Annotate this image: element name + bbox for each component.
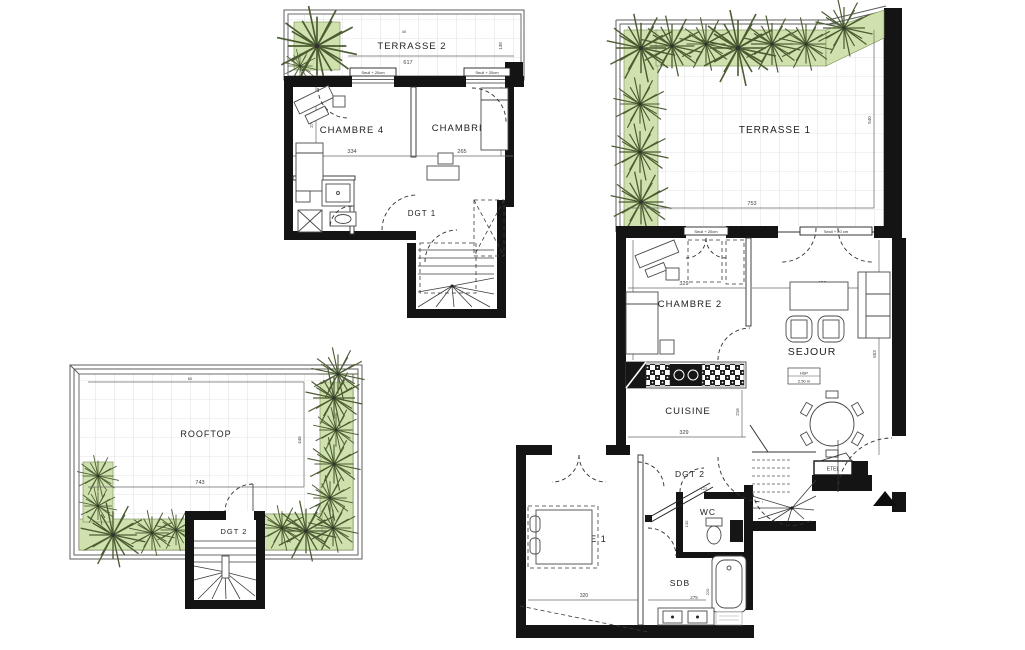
dining-table (800, 391, 863, 457)
entry-staircase (752, 460, 816, 525)
chambre4-label: CHAMBRE 4 (320, 125, 384, 136)
cuisine-room: CUISINE 329 216 (626, 362, 768, 452)
main-facade-wall: Seuil + 20cm Seuil + 20 cm (616, 226, 902, 238)
kitchen-sink (670, 364, 702, 386)
terrasse1-area: TERRASSE 1 753 540 (607, 0, 902, 234)
chambre2-width-dim: 329 (679, 281, 688, 287)
chair (333, 96, 345, 107)
sdb-width-dim: 275 (690, 595, 698, 600)
placard (726, 240, 744, 284)
svg-text:Seuil + 20cm: Seuil + 20cm (361, 70, 385, 75)
terrasse2-width-dim: 617 (403, 60, 412, 66)
rooftop-label: ROOFTOP (180, 429, 231, 439)
terrasse1-label: TERRASSE 1 (739, 125, 811, 136)
chambre2-label: CHAMBRE 2 (658, 299, 722, 310)
rooftop-width-dim: 743 (195, 480, 204, 486)
etel-label: ETEL (827, 467, 840, 473)
bed-chambre1 (536, 510, 592, 564)
cuisine-width-dim: 329 (679, 430, 688, 436)
wc-basin (730, 520, 743, 542)
upper-staircase (418, 243, 494, 307)
sdb-label: SDB (670, 578, 690, 588)
wc-room: WC 122 130 (680, 468, 743, 544)
dgt1-label: DGT 1 (408, 209, 436, 218)
rooftop-top-dim: 60 (188, 376, 193, 381)
upper-furniture (294, 86, 508, 232)
chambre1-room: CHAMBRE 1 320 (520, 455, 648, 632)
cuisine-label: CUISINE (665, 406, 711, 417)
kitchen-cooktop (702, 364, 744, 386)
cuisine-height-dim: 216 (735, 408, 740, 416)
plan-rooftop: 60 743 446 ROOFTOP DGT 2 (70, 347, 365, 609)
terrasse2-side-dim: 138 (498, 42, 503, 50)
toilet-tank (706, 518, 722, 526)
threshold-tag: Seuil + 20cm (350, 68, 396, 76)
sejour-room: SEJOUR 430 653 (686, 228, 890, 457)
chambre3-width-dim: 265 (457, 149, 466, 155)
kitchen-counter (646, 364, 670, 386)
bed-chambre2 (626, 292, 658, 354)
terrasse2-label: TERRASSE 2 (377, 41, 446, 52)
svg-text:Seuil + 20cm: Seuil + 20cm (694, 229, 718, 234)
sofa (858, 272, 890, 338)
hsp-tag: HSP 2.50 m (788, 368, 820, 384)
wc-width-dim: 122 (701, 486, 708, 491)
bed-chambre4 (296, 143, 323, 191)
sejour-label: SEJOUR (788, 346, 837, 358)
wc-label: WC (700, 507, 716, 517)
threshold-tag: Seuil + 20cm (684, 227, 728, 235)
desk-chambre3 (427, 166, 459, 180)
chambre4-width-dim: 334 (347, 149, 356, 155)
svg-text:Seuil + 20cm: Seuil + 20cm (475, 70, 499, 75)
upper-walls (284, 87, 514, 318)
dgt2-label: DGT 2 (675, 469, 705, 479)
floorplan-sheet: 617 40 138 TERRASSE 2 Seuil + 20cm Seuil… (0, 0, 1025, 650)
vanity (658, 608, 714, 625)
svg-text:Seuil + 20 cm: Seuil + 20 cm (824, 229, 849, 234)
sejour-height-dim: 653 (872, 350, 877, 358)
rooftop-dgt2-label: DGT 2 (221, 527, 248, 536)
svg-text:HSP: HSP (800, 371, 809, 376)
threshold-tag: Seuil + 20cm (464, 68, 510, 76)
terrasse1-width-dim: 753 (747, 201, 756, 207)
bed-chambre3 (481, 88, 508, 150)
floorplan-drawing: 617 40 138 TERRASSE 2 Seuil + 20cm Seuil… (0, 0, 1025, 650)
threshold-tag: Seuil + 20 cm (800, 227, 872, 235)
plan-main-level: TERRASSE 1 753 540 Seuil + 20cm Seuil + … (516, 0, 906, 638)
placard (688, 240, 722, 282)
svg-text:2.50 m: 2.50 m (798, 379, 811, 384)
sdb-height-dim: 220 (705, 588, 710, 595)
wc-height-dim: 130 (684, 520, 689, 527)
terrasse2-top-dim: 40 (402, 29, 407, 34)
chambre1-width-dim: 320 (580, 593, 589, 599)
toilet (707, 526, 721, 544)
terrasse1-height-dim: 540 (867, 116, 872, 124)
rooftop-height-dim: 446 (297, 436, 302, 444)
plan-upper-level: 617 40 138 TERRASSE 2 Seuil + 20cm Seuil… (277, 6, 524, 318)
table-basse (790, 282, 848, 310)
sdb-room: SDB 275 220 (648, 528, 746, 625)
